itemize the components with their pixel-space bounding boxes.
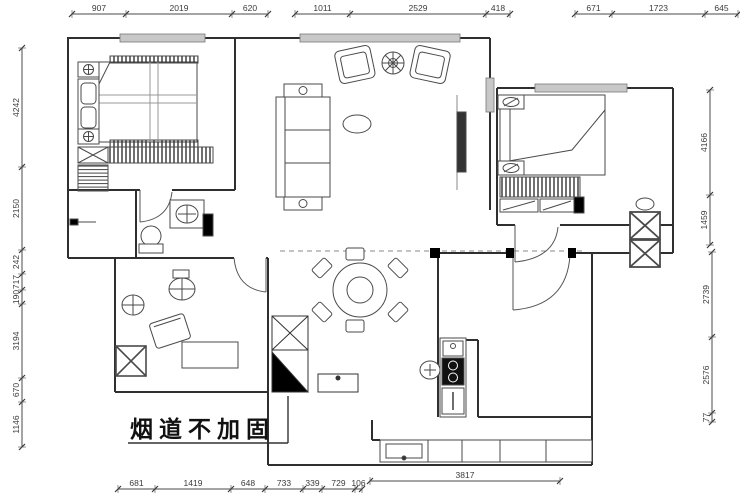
dim-label: 418 — [491, 3, 505, 13]
dim-label: 190 — [11, 290, 21, 304]
dining-chair — [346, 320, 364, 332]
toilet-bowl — [141, 226, 161, 246]
toilet-tank — [139, 244, 163, 253]
decor-oval — [636, 198, 654, 210]
dim-label: 2739 — [701, 285, 711, 304]
dim-label: 681 — [129, 478, 143, 488]
sofa-side-table — [284, 84, 322, 97]
dim-label: 645 — [714, 3, 728, 13]
bedroom1-furniture — [78, 56, 213, 191]
dim-label: 717 — [11, 275, 21, 289]
corner-black — [574, 197, 584, 213]
wardrobe-hatched — [108, 147, 213, 163]
kitchen-fixtures — [420, 338, 466, 417]
sofa-3seat — [276, 97, 330, 197]
flue-annotation: 烟道不加固 — [130, 416, 275, 443]
stove — [442, 358, 464, 385]
bath1-fixtures — [70, 200, 213, 253]
floorplan-page: 烟道不加固 9072019620101125294186711723645424… — [0, 0, 740, 498]
dim-label: 106 — [351, 478, 365, 488]
sofa-side-table — [284, 197, 322, 210]
window-living — [300, 34, 460, 42]
dim-label: 670 — [11, 383, 21, 397]
column-black — [203, 214, 213, 236]
door-bedroom1 — [140, 190, 172, 222]
window-bedroom2 — [535, 84, 627, 92]
dim-label: 2529 — [409, 3, 428, 13]
dim-label: 729 — [331, 478, 345, 488]
dim-label: 339 — [305, 478, 319, 488]
flue-duct — [272, 316, 358, 392]
pillow — [81, 107, 96, 128]
bath2-fixtures — [116, 270, 238, 376]
coffee-table — [343, 115, 371, 133]
dining-chair — [311, 301, 332, 322]
living-furniture — [276, 45, 466, 210]
desk — [182, 342, 238, 368]
dim-label: 1011 — [313, 3, 332, 13]
pillow — [81, 83, 96, 104]
dim-label: 2150 — [11, 199, 21, 218]
armchair — [334, 45, 376, 85]
tv-panel — [457, 112, 466, 172]
dining-chair — [311, 257, 332, 278]
door-bedroom2 — [515, 225, 558, 262]
dim-label: 671 — [586, 3, 600, 13]
door-stop — [70, 219, 78, 225]
dim-label: 77 — [701, 413, 711, 423]
door-bath2 — [234, 258, 266, 292]
window-living-side — [486, 78, 494, 112]
dining-chair — [387, 301, 408, 322]
window-bedroom1 — [120, 34, 205, 42]
dim-label: 1723 — [649, 3, 668, 13]
dim-label: 1146 — [11, 415, 21, 434]
dim-label: 2576 — [701, 365, 711, 384]
dining-table — [333, 263, 387, 317]
dim-label: 242 — [11, 255, 21, 269]
dining-chair — [346, 248, 364, 260]
dim-label: 2019 — [170, 3, 189, 13]
dining-chair — [387, 257, 408, 278]
dining-set — [311, 248, 408, 332]
dim-label: 620 — [243, 3, 257, 13]
dim-label: 733 — [277, 478, 291, 488]
armchair — [409, 45, 451, 85]
wardrobe-hatched — [500, 177, 580, 197]
dim-label: 1459 — [699, 210, 709, 229]
dim-label: 648 — [241, 478, 255, 488]
bed-fringe-bottom — [110, 140, 198, 147]
balcony-cabinets — [372, 420, 592, 462]
bedroom2-furniture — [498, 95, 660, 267]
floor-plan-svg: 烟道不加固 9072019620101125294186711723645424… — [0, 0, 740, 498]
bed-fringe-top — [110, 56, 198, 63]
striped-cabinet — [78, 165, 108, 191]
dim-label: 3817 — [456, 470, 475, 480]
dim-label: 4166 — [699, 133, 709, 152]
dim-label: 907 — [92, 3, 106, 13]
bed-double — [99, 62, 197, 142]
dim-label: 4242 — [11, 98, 21, 117]
dim-label: 1419 — [184, 478, 203, 488]
dim-label: 3194 — [11, 331, 21, 350]
